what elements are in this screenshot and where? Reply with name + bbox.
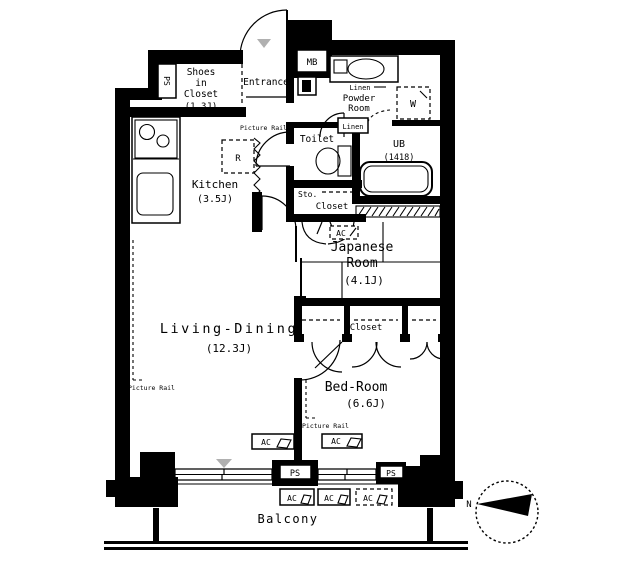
ac-box-living <box>252 434 294 449</box>
wall-top-right <box>330 40 455 55</box>
unit-bath-label: UB <box>393 139 405 150</box>
bedroom-closet-door-arc-2 <box>352 342 377 367</box>
picture-rail-hall-label: Picture Rail <box>240 124 287 132</box>
wall-left <box>115 88 130 507</box>
ac-balcony-label-3: AC <box>363 494 373 503</box>
entrance-step-mark <box>302 80 311 92</box>
unit-bath-size: (1418) <box>384 153 415 163</box>
kitchen-size: (3.5J) <box>197 194 233 205</box>
shoes-closet-label-2: in <box>195 78 206 89</box>
bedroom-closet-door-arc-4 <box>410 342 427 359</box>
pipe-space-bottom-label-1: PS <box>290 469 300 479</box>
wall-living-bedroom <box>294 378 302 468</box>
pipe-space-top-label: PS <box>162 76 171 86</box>
wall-toilet-top <box>294 122 338 128</box>
entrance-label: Entrance <box>243 77 289 88</box>
bedroom-closet-door-arc-3 <box>376 342 401 367</box>
wall-ub-top-b <box>392 120 440 126</box>
japanese-room-label-2: Room <box>346 256 377 271</box>
window-bedroom <box>318 469 376 480</box>
pillar-bottom-left-2 <box>118 477 178 507</box>
shoes-closet-label-3: Closet <box>184 89 218 100</box>
floor-plan: Shoes in Closet (1.3J) Entrance PS MB Li… <box>0 0 640 569</box>
entrance-door-arc <box>240 10 287 57</box>
shoes-closet-label-1: Shoes <box>187 67 216 78</box>
ac-living-label: AC <box>261 438 271 447</box>
wall-sto-bottom <box>286 214 366 222</box>
bathtub-inner <box>364 166 428 192</box>
wall-right <box>440 40 455 472</box>
japanese-room-label-1: Japanese <box>331 240 394 255</box>
pillar-bottom-right-3 <box>450 481 463 499</box>
toilet-bowl <box>316 148 340 174</box>
picture-rail-living-line <box>133 240 143 380</box>
wall-closet-post4 <box>438 334 450 342</box>
window-living <box>175 469 272 480</box>
toilet-door-arc <box>256 132 290 166</box>
pillar-bottom-right-2 <box>398 466 445 507</box>
kitchen-label: Kitchen <box>192 178 238 191</box>
wall-closet-div2 <box>402 306 408 336</box>
bedroom-closet-label: Closet <box>350 323 383 333</box>
bedroom-label: Bed-Room <box>325 380 388 395</box>
wall-ub-bottom <box>352 196 455 204</box>
balcony-divider-right <box>427 508 433 541</box>
ac-bedroom-label: AC <box>331 437 341 446</box>
balcony-divider-left <box>153 508 159 541</box>
ac-box-balcony-3 <box>356 489 392 505</box>
bathtub <box>360 162 432 196</box>
powder-room-label-2: Room <box>348 104 370 114</box>
linen-cabinet-label: Linen <box>342 123 363 131</box>
wall-closet-post3 <box>400 334 410 342</box>
japanese-room-size: (4.1J) <box>344 274 384 287</box>
wall-top-left <box>148 50 243 64</box>
linen-upper-label: Linen <box>349 84 370 92</box>
ac-balcony-label-1: AC <box>287 494 297 503</box>
living-direction-marker <box>216 459 232 468</box>
sto-closet-label: Closet <box>316 202 349 212</box>
floor-plan-page: Shoes in Closet (1.3J) Entrance PS MB Li… <box>0 0 640 569</box>
storage-label: Sto. <box>298 190 317 199</box>
hatched-strip <box>356 206 440 217</box>
bedroom-door-arc <box>300 340 340 380</box>
balcony-rail-1 <box>104 541 468 544</box>
shoes-closet-size: (1.3J) <box>185 102 218 112</box>
north-label: N <box>466 500 471 510</box>
living-dining-label: Living-Dining <box>160 321 298 337</box>
balcony-rail-2 <box>104 547 468 550</box>
sto-closet-leaf-1 <box>317 222 322 234</box>
ac-japanese-label: AC <box>336 229 346 238</box>
bedroom-size: (6.6J) <box>346 397 386 410</box>
picture-rail-bedroom-label: Picture Rail <box>302 422 349 430</box>
wall-toilet-bottom <box>286 180 362 188</box>
ac-box-balcony-1 <box>280 489 314 505</box>
bedroom-closet-leaf-1 <box>315 342 342 368</box>
balcony-label: Balcony <box>257 512 318 526</box>
compass <box>476 481 538 543</box>
powder-room-label-1: Powder <box>343 94 376 104</box>
north-needle <box>477 494 532 516</box>
refrigerator-label: R <box>235 154 241 164</box>
wall-closet-post2 <box>342 334 352 342</box>
meter-box-label: MB <box>307 58 318 68</box>
ac-balcony-label-2: AC <box>324 494 334 503</box>
toilet-label: Toilet <box>300 134 334 145</box>
ac-box-bedroom <box>322 434 362 448</box>
sto-closet-door-arc-left <box>302 222 326 244</box>
pipe-space-bottom-label-2: PS <box>386 469 396 478</box>
washer-label: W <box>410 99 417 110</box>
ac-box-balcony-2 <box>318 489 350 505</box>
picture-rail-living-label: Picture Rail <box>128 384 175 392</box>
living-dining-size: (12.3J) <box>206 342 252 355</box>
wall-closet-top <box>294 298 448 306</box>
picture-rail-bedroom-line <box>306 380 316 418</box>
pillar-bottom-left-3 <box>106 480 119 497</box>
entry-direction-marker <box>257 39 271 48</box>
wall-toilet-left-a <box>286 122 294 144</box>
